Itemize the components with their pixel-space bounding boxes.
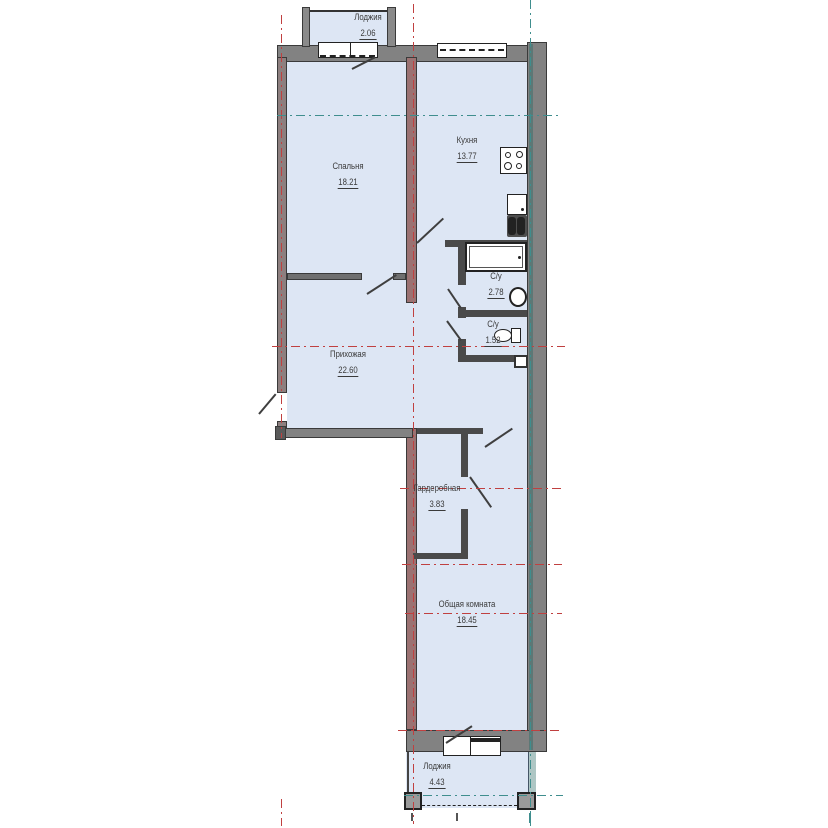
- room-area: 1.52: [485, 336, 502, 347]
- room-name: Спальня: [322, 162, 374, 171]
- room-name: Гардеробная: [406, 484, 468, 493]
- room-area: 4.43: [429, 778, 446, 789]
- room-name: Лоджия: [413, 762, 461, 771]
- room-name: Кухня: [441, 136, 493, 145]
- axis-horizontal-teal-2: [404, 795, 563, 796]
- room-name: Общая комната: [422, 600, 511, 609]
- room-name: С/у: [476, 320, 510, 329]
- room-area: 18.21: [337, 178, 358, 189]
- room-label-bathroom: С/у 2.78: [479, 272, 513, 299]
- loggia-top-left-pillar: [302, 7, 310, 47]
- room-label-loggia-top: Лоджия 2.06: [346, 13, 391, 40]
- room-label-kitchen: Кухня 13.77: [441, 136, 493, 163]
- lower-left-bearing-wall: [406, 428, 417, 730]
- entrance-door-leaf: [258, 393, 276, 414]
- kitchen-counter-unit: [507, 215, 527, 237]
- bathtub-icon: [465, 242, 527, 272]
- kitchen-sink-icon: [507, 194, 527, 215]
- loggia-tick-2: [456, 813, 458, 821]
- axis-horizontal-red-1: [272, 346, 565, 347]
- loggia-bottom-parapet: [422, 805, 517, 806]
- axis-horizontal-red-5: [398, 730, 562, 731]
- room-label-hallway: Прихожая 22.60: [312, 350, 384, 377]
- bath-toilet-divider: [462, 310, 527, 317]
- axis-vertical-red-2: [413, 4, 414, 824]
- axis-vertical-red-1b: [281, 799, 282, 826]
- lower-block-floor: [413, 428, 527, 730]
- loggia-bottom-left-edge: [407, 752, 409, 792]
- hallway-south-wall: [277, 428, 413, 438]
- room-area: 2.78: [488, 288, 505, 299]
- bedroom-south-wall: [287, 273, 362, 280]
- room-name: Лоджия: [346, 13, 391, 22]
- room-area: 3.83: [429, 500, 446, 511]
- left-exterior-wall: [277, 57, 287, 393]
- stove-icon: [500, 147, 527, 174]
- wardrobe-right-wall-2: [461, 509, 468, 554]
- room-name: Прихожая: [312, 350, 384, 359]
- room-area: 22.60: [337, 366, 358, 377]
- loggia-window-sash: [320, 55, 375, 57]
- room-area: 2.06: [360, 29, 377, 40]
- axis-horizontal-red-3: [402, 564, 562, 565]
- bedroom-kitchen-wall: [406, 57, 417, 303]
- kitchen-window-sash: [440, 49, 504, 51]
- corridor-top-wall: [417, 428, 483, 434]
- room-label-wardrobe: Гардеробная 3.83: [406, 484, 468, 511]
- room-area: 13.77: [456, 152, 477, 163]
- room-label-toilet: С/у 1.52: [476, 320, 510, 347]
- axis-horizontal-teal-1: [277, 115, 559, 116]
- living-window-sill: [471, 738, 500, 742]
- axis-vertical-red-1: [281, 15, 282, 438]
- room-label-loggia-bottom: Лоджия 4.43: [413, 762, 461, 789]
- wardrobe-south-wall: [413, 553, 468, 559]
- balcony-door-bottom-panel: [443, 736, 471, 756]
- vent-shaft: [514, 355, 528, 368]
- axis-vertical-teal: [530, 0, 531, 828]
- room-label-bedroom: Спальня 18.21: [322, 162, 374, 189]
- wardrobe-right-wall-1: [461, 433, 468, 477]
- room-area: 18.45: [456, 616, 477, 627]
- room-name: С/у: [479, 272, 513, 281]
- room-label-living-room: Общая комната 18.45: [422, 600, 511, 627]
- floor-plan: Лоджия 2.06 Спальня 18.21 Кухня 13.77 С/…: [0, 0, 828, 828]
